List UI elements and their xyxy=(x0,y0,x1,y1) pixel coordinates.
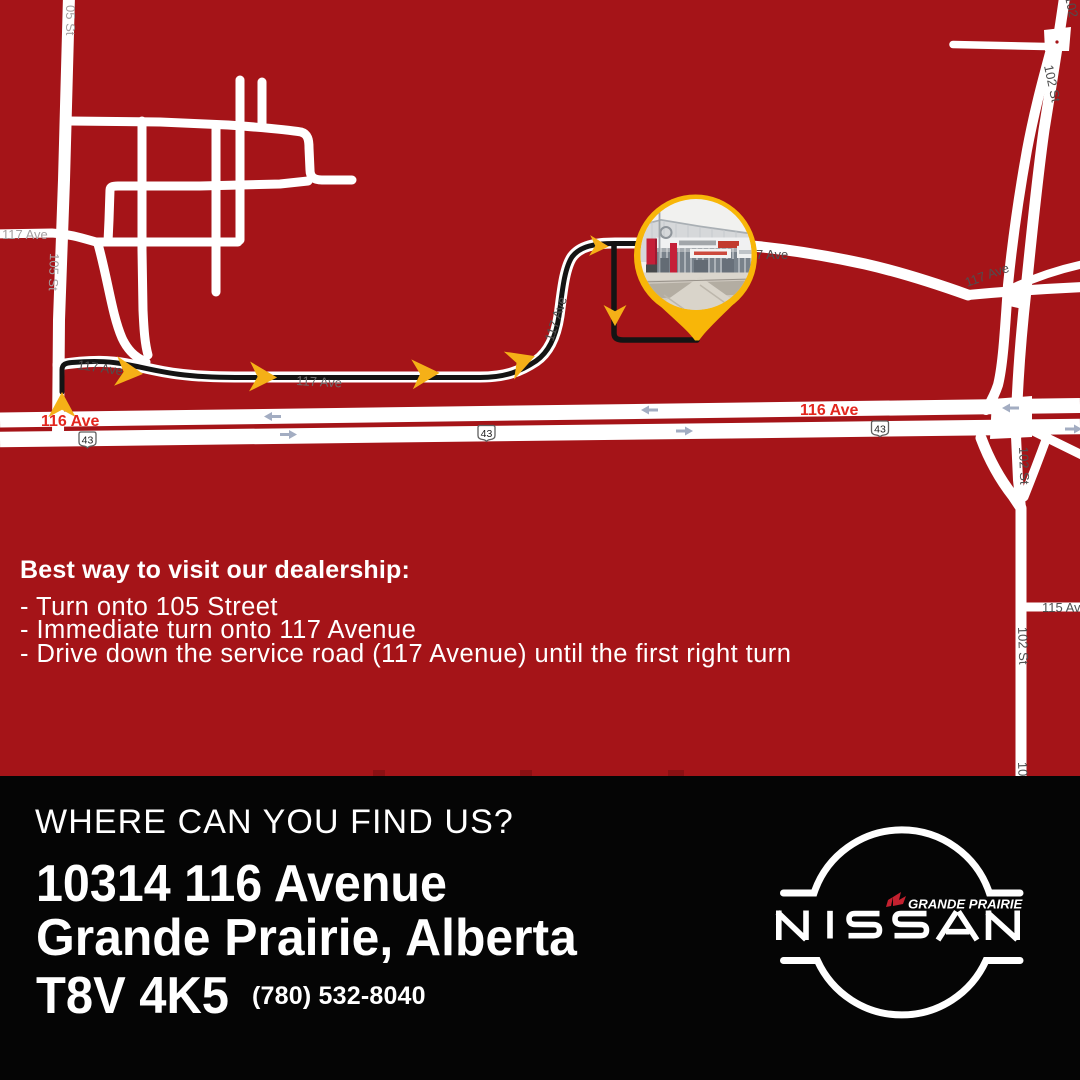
svg-text:43: 43 xyxy=(874,423,886,435)
svg-text:117 Ave: 117 Ave xyxy=(296,373,343,390)
svg-text:117 Ave: 117 Ave xyxy=(2,227,48,242)
svg-text:116 Ave: 116 Ave xyxy=(800,402,859,419)
svg-text:43: 43 xyxy=(82,434,94,446)
svg-text:102 St: 102 St xyxy=(1015,627,1031,665)
svg-text:05 St: 05 St xyxy=(63,5,78,36)
svg-text:43: 43 xyxy=(481,428,493,440)
svg-text:7 Ave: 7 Ave xyxy=(756,247,788,262)
svg-text:102 St: 102 St xyxy=(1016,447,1032,485)
svg-text:117 Ave: 117 Ave xyxy=(542,295,570,343)
svg-text:105 St: 105 St xyxy=(46,253,62,291)
svg-text:115 Ave: 115 Ave xyxy=(1042,600,1080,615)
svg-text:GRANDE PRAIRIE: GRANDE PRAIRIE xyxy=(908,897,1024,912)
svg-text:116 Ave: 116 Ave xyxy=(41,413,100,430)
